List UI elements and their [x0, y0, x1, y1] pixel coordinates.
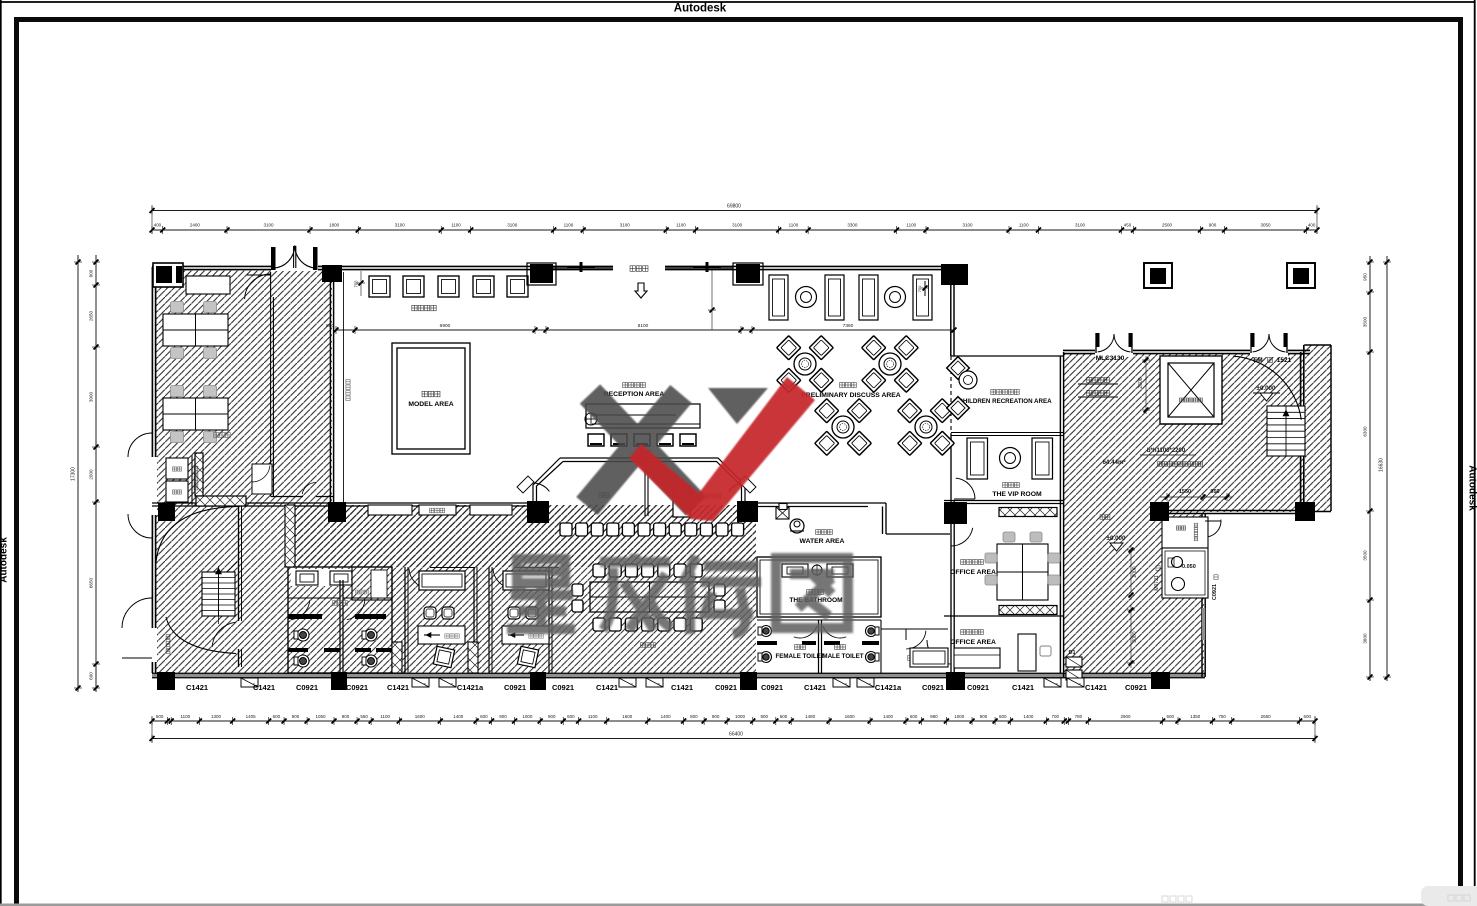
svg-text:3800: 3800 [1363, 633, 1368, 644]
svg-text:780: 780 [1075, 714, 1083, 719]
svg-text:1100: 1100 [588, 714, 598, 719]
svg-text:FM: FM [1253, 357, 1262, 364]
svg-text:1100: 1100 [906, 223, 916, 228]
svg-text:OFFICE AREA: OFFICE AREA [950, 569, 996, 576]
svg-text:c: c [1056, 681, 1058, 686]
svg-text:C1421a: C1421a [457, 683, 484, 692]
svg-text:±0.000: ±0.000 [1257, 385, 1276, 392]
svg-text:1100: 1100 [380, 714, 390, 719]
svg-text:900: 900 [761, 714, 769, 719]
svg-text:C1421: C1421 [1085, 683, 1107, 692]
svg-text:C0921: C0921 [1212, 584, 1218, 600]
svg-text:7360: 7360 [843, 323, 854, 329]
svg-text:900: 900 [292, 714, 300, 719]
svg-text:CHILDREN RECREATION AREA: CHILDREN RECREATION AREA [958, 398, 1052, 405]
svg-text:C0921: C0921 [761, 683, 783, 692]
svg-text:700: 700 [354, 280, 359, 288]
svg-text:-0.050: -0.050 [1180, 564, 1196, 570]
svg-text:C0921: C0921 [1125, 683, 1147, 692]
svg-text:900: 900 [499, 714, 507, 719]
svg-text:17300: 17300 [71, 467, 77, 481]
svg-text:1521: 1521 [1277, 357, 1292, 364]
svg-text:MODEL AREA: MODEL AREA [408, 401, 453, 408]
svg-text:b*h1100*2200: b*h1100*2200 [1147, 448, 1186, 454]
svg-text:3300: 3300 [847, 223, 858, 228]
svg-text:600: 600 [89, 672, 94, 680]
svg-text:69800: 69800 [727, 204, 741, 210]
svg-text:C0921: C0921 [922, 683, 944, 692]
svg-text:C0921: C0921 [296, 683, 318, 692]
svg-text:2400: 2400 [190, 223, 201, 228]
svg-text:1100: 1100 [1019, 223, 1029, 228]
svg-text:1100: 1100 [180, 714, 190, 719]
svg-text:550: 550 [360, 714, 368, 719]
svg-text:980: 980 [930, 714, 938, 719]
svg-text:C1421: C1421 [387, 683, 409, 692]
svg-text:600: 600 [1167, 714, 1175, 719]
svg-text:±0.000: ±0.000 [1107, 535, 1126, 542]
svg-text:3100: 3100 [962, 223, 973, 228]
svg-text:1100: 1100 [451, 223, 461, 228]
svg-text:1100: 1100 [564, 223, 574, 228]
svg-text:THE VIP ROOM: THE VIP ROOM [992, 491, 1042, 498]
svg-text:400: 400 [154, 223, 162, 228]
svg-text:M0721: M0721 [1154, 575, 1160, 591]
svg-text:1550: 1550 [1179, 489, 1191, 495]
svg-text:C0921: C0921 [504, 683, 526, 692]
svg-text:2000: 2000 [89, 469, 94, 480]
svg-text:1600: 1600 [845, 714, 856, 719]
svg-text:1600: 1600 [415, 714, 426, 719]
svg-text:600: 600 [780, 714, 788, 719]
svg-text:900: 900 [1209, 223, 1217, 228]
svg-text:3000: 3000 [1132, 631, 1138, 642]
svg-text:750: 750 [917, 285, 922, 292]
svg-text:1400: 1400 [1023, 714, 1034, 719]
svg-text:MALE TOILET: MALE TOILET [822, 653, 863, 660]
svg-text:1405: 1405 [246, 714, 257, 719]
svg-text:MLC3130: MLC3130 [1096, 355, 1125, 362]
svg-text:3100: 3100 [1075, 223, 1086, 228]
svg-text:1400: 1400 [883, 714, 894, 719]
svg-text:OFFICE AREA: OFFICE AREA [950, 639, 996, 646]
svg-text:2650: 2650 [89, 310, 94, 321]
svg-text:3500: 3500 [1363, 316, 1368, 327]
svg-text:1100: 1100 [676, 223, 686, 228]
svg-text:700: 700 [1052, 714, 1060, 719]
svg-text:1050: 1050 [316, 714, 327, 719]
svg-text:FEMALE TOILET: FEMALE TOILET [775, 653, 824, 660]
svg-text:1000: 1000 [954, 714, 965, 719]
svg-text:c: c [631, 681, 633, 686]
svg-text:950: 950 [1210, 489, 1219, 495]
svg-text:Autodesk: Autodesk [674, 3, 727, 15]
svg-text:3100: 3100 [395, 223, 406, 228]
svg-text:900: 900 [548, 714, 556, 719]
svg-text:c: c [424, 681, 426, 686]
svg-text:C0921: C0921 [346, 683, 368, 692]
svg-text:D1: D1 [1068, 650, 1075, 656]
svg-text:3900: 3900 [89, 391, 94, 402]
svg-text:3100: 3100 [507, 223, 518, 228]
svg-text:600: 600 [480, 714, 488, 719]
svg-text:1400: 1400 [453, 714, 464, 719]
svg-text:C0921: C0921 [552, 683, 574, 692]
svg-text:RECEPTION AREA: RECEPTION AREA [604, 391, 665, 398]
svg-text:c: c [869, 681, 871, 686]
svg-text:1000: 1000 [735, 714, 746, 719]
svg-text:C1421: C1421 [1012, 683, 1034, 692]
svg-text:600: 600 [999, 714, 1007, 719]
svg-text:64.44m²: 64.44m² [1102, 459, 1125, 466]
svg-text:400: 400 [1308, 223, 1316, 228]
svg-text:6900: 6900 [440, 323, 451, 329]
svg-text:PRELIMINARY DISCUSS AREA: PRELIMINARY DISCUSS AREA [801, 392, 901, 399]
svg-text:1480: 1480 [805, 714, 816, 719]
svg-text:6300: 6300 [1363, 426, 1368, 437]
svg-text:1350: 1350 [1190, 714, 1201, 719]
svg-text:C0921: C0921 [715, 683, 737, 692]
svg-text:C0921: C0921 [967, 683, 989, 692]
svg-text:C1421: C1421 [186, 683, 208, 692]
svg-text:3500: 3500 [1363, 550, 1368, 561]
svg-text:WATER AREA: WATER AREA [800, 538, 845, 545]
svg-text:1300: 1300 [211, 714, 222, 719]
svg-text:600: 600 [567, 714, 575, 719]
svg-text:450: 450 [1124, 223, 1132, 228]
svg-text:6650: 6650 [89, 577, 94, 588]
svg-text:3050: 3050 [1260, 223, 1271, 228]
svg-text:900: 900 [712, 714, 720, 719]
svg-text:8100: 8100 [638, 323, 649, 329]
svg-text:750: 750 [1218, 714, 1226, 719]
svg-text:1600: 1600 [622, 714, 633, 719]
svg-text:2650: 2650 [1261, 714, 1272, 719]
svg-text:600: 600 [156, 714, 164, 719]
svg-text:600: 600 [273, 714, 281, 719]
svg-text:1000: 1000 [522, 714, 533, 719]
svg-text:1800: 1800 [329, 223, 340, 228]
svg-text:C1421: C1421 [804, 683, 826, 692]
svg-text:900: 900 [980, 714, 988, 719]
svg-text:Autodesk: Autodesk [0, 537, 10, 583]
svg-text:Autodesk: Autodesk [1467, 465, 1477, 511]
svg-text:C1421: C1421 [596, 683, 618, 692]
svg-text:3100: 3100 [732, 223, 743, 228]
svg-text:C1421a: C1421a [875, 683, 902, 692]
svg-text:3100: 3100 [263, 223, 274, 228]
svg-text:2000: 2000 [1132, 566, 1138, 577]
svg-text:1100: 1100 [789, 223, 799, 228]
svg-text:600: 600 [1304, 714, 1312, 719]
svg-text:c: c [658, 681, 660, 686]
svg-text:c: c [451, 681, 453, 686]
svg-text:950: 950 [1363, 273, 1368, 281]
svg-text:600: 600 [910, 714, 918, 719]
svg-text:c: c [845, 681, 847, 686]
svg-text:800: 800 [690, 714, 698, 719]
svg-text:1400: 1400 [661, 714, 672, 719]
svg-text:900: 900 [342, 714, 350, 719]
svg-text:C1421: C1421 [253, 683, 275, 692]
svg-text:3100: 3100 [620, 223, 631, 228]
svg-text:800: 800 [89, 269, 94, 277]
svg-text:66400: 66400 [729, 732, 743, 738]
svg-text:c: c [1079, 681, 1081, 686]
svg-text:16630: 16630 [1379, 458, 1385, 472]
svg-text:2900: 2900 [1120, 714, 1131, 719]
svg-text:2500: 2500 [1162, 223, 1173, 228]
svg-text:2600: 2600 [1138, 377, 1144, 388]
svg-text:C1421: C1421 [671, 683, 693, 692]
